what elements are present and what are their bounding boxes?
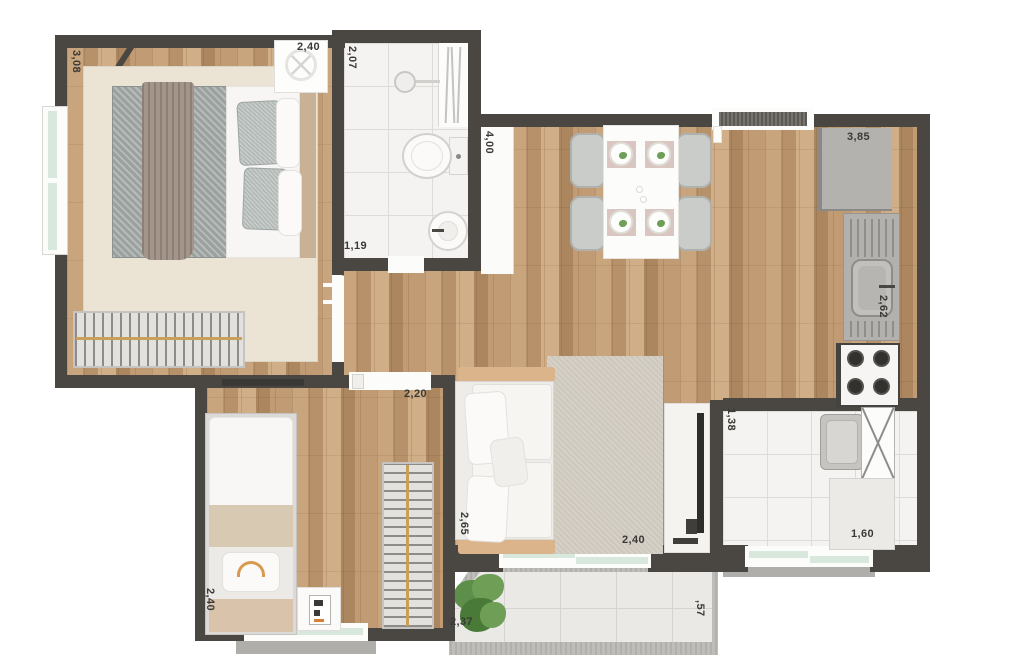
dim-bathroom-width: 1,19 bbox=[344, 241, 367, 252]
bedroom1-wardrobe-rod bbox=[76, 337, 242, 340]
bedroom2-window-sill bbox=[236, 641, 376, 654]
wall-living-top-right bbox=[810, 114, 930, 127]
wall-living-laundry-divider bbox=[710, 400, 723, 547]
dining-chair-3 bbox=[676, 133, 712, 188]
bedroom2-wardrobe-rod bbox=[406, 465, 409, 626]
tv-icon bbox=[697, 413, 704, 533]
wall-bedroom1-right bbox=[332, 43, 344, 275]
laundry-window-glass-left bbox=[749, 551, 808, 558]
bedroom1-pillow-white1 bbox=[276, 98, 300, 168]
bedroom1-bed-throw bbox=[142, 82, 194, 260]
wall-bedroom1-left-upper bbox=[55, 44, 67, 110]
dim-kitchen-counter: 2,62 bbox=[877, 295, 888, 318]
dim-bedroom1-width: 2,40 bbox=[297, 42, 320, 53]
wall-laundry-bottom-left bbox=[710, 545, 748, 572]
table-centerpiece-2 bbox=[640, 196, 647, 203]
plate-1 bbox=[609, 142, 633, 166]
balcony-slider-glass-right bbox=[576, 557, 648, 564]
dim-laundry-width: 1,60 bbox=[851, 529, 874, 540]
wall-bedroom1-left-lower bbox=[55, 251, 67, 388]
floor-plan: 3,08 2,40 2,07 1,19 4,00 3,85 2,62 2,20 … bbox=[0, 0, 1024, 672]
dim-sofa-wall: 2,65 bbox=[458, 512, 469, 535]
plate-4 bbox=[647, 210, 671, 234]
stove-icon bbox=[836, 343, 900, 407]
bedroom1-door-hinge2 bbox=[323, 300, 333, 304]
bedroom2-tv-icon bbox=[222, 379, 304, 386]
shower-glass-panel bbox=[438, 43, 468, 127]
dim-laundry-depth: 1,38 bbox=[725, 408, 736, 431]
shower-head-icon bbox=[394, 71, 416, 93]
wall-right-exterior bbox=[917, 114, 930, 572]
dim-bathroom-length: 2,07 bbox=[346, 46, 357, 69]
bathroom-sink-icon bbox=[428, 211, 468, 251]
bedroom1-window-divider bbox=[44, 178, 66, 183]
wall-bedroom1-right-stub bbox=[332, 360, 344, 376]
dim-living-length: 4,00 bbox=[483, 131, 494, 154]
bedroom2-pillow bbox=[222, 552, 280, 592]
shower-arm bbox=[416, 80, 440, 83]
counter-drainboard-bottom bbox=[850, 321, 894, 337]
laundry-window-glass-right bbox=[810, 556, 869, 563]
table-centerpiece bbox=[636, 186, 643, 193]
entrance-doormat bbox=[719, 112, 807, 126]
plate-3 bbox=[609, 210, 633, 234]
wall-bathroom-bottom-right bbox=[422, 258, 481, 271]
dim-balcony-depth: ,57 bbox=[694, 600, 705, 617]
soundbar bbox=[673, 538, 698, 544]
dining-chair-4 bbox=[676, 196, 712, 251]
wall-bedroom2-right bbox=[443, 375, 455, 641]
media-box bbox=[686, 519, 697, 534]
wall-bathroom-right bbox=[468, 30, 481, 270]
dim-bedroom2-length: 2,40 bbox=[204, 588, 215, 611]
plate-2 bbox=[647, 142, 671, 166]
dim-kitchen-width: 3,85 bbox=[847, 132, 870, 143]
bedroom2-nightstand bbox=[297, 587, 341, 631]
bedroom1-door-hinge bbox=[323, 283, 333, 287]
bedroom1-pillow-white2 bbox=[278, 170, 302, 236]
dim-bedroom2-width: 2,20 bbox=[404, 389, 427, 400]
dim-living-width: 2,40 bbox=[622, 535, 645, 546]
bathroom-door-threshold bbox=[388, 256, 424, 273]
entrance-door-leaf bbox=[713, 126, 722, 143]
dining-chair-2 bbox=[570, 196, 606, 251]
dim-balcony-width: 2,37 bbox=[450, 617, 473, 628]
wall-bathroom-bottom-left bbox=[332, 258, 390, 271]
sofa-pillow-3 bbox=[489, 436, 529, 488]
counter-drainboard-top bbox=[850, 219, 894, 257]
dim-bedroom1-length: 3,08 bbox=[70, 50, 81, 73]
sofa-frame-top bbox=[458, 367, 555, 382]
dining-chair-1 bbox=[570, 133, 606, 188]
bedroom2-mattress bbox=[209, 417, 293, 513]
balcony-plant-icon bbox=[450, 572, 514, 638]
washer-space-marker bbox=[861, 407, 895, 479]
bedroom2-blanket bbox=[209, 505, 293, 547]
toilet-bowl-icon bbox=[402, 133, 452, 179]
bedroom1-door-leaf bbox=[332, 276, 344, 362]
bedroom2-bed-footer bbox=[209, 599, 293, 632]
wall-bathroom-top bbox=[332, 30, 481, 43]
living-rug bbox=[547, 356, 663, 554]
laundry-tank-icon bbox=[820, 414, 864, 470]
bedroom1-lamp-icon bbox=[285, 49, 317, 81]
bedroom2-door-leaf bbox=[352, 374, 364, 389]
